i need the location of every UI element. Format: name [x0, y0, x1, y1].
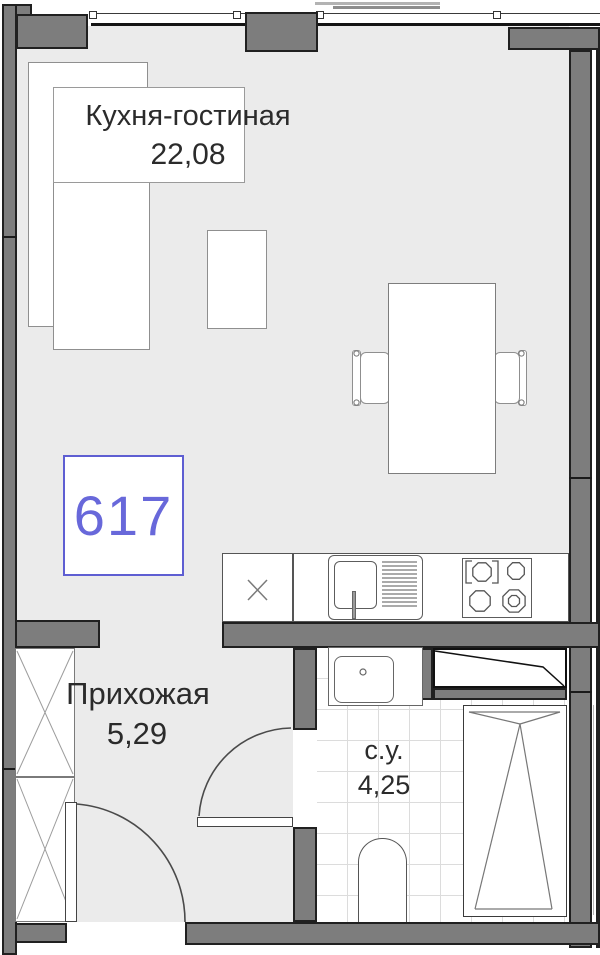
entrance-door-swing [77, 804, 185, 922]
hallway-name: Прихожая [28, 678, 248, 711]
bathroom-area: 4,25 [339, 771, 429, 799]
hallway-area: 5,29 [28, 718, 246, 751]
unit-number: 617 [74, 483, 173, 548]
bathroom-name: с.у. [339, 736, 429, 764]
kitchen-living-area: 22,08 [38, 139, 338, 171]
kitchen-living-name: Кухня-гостиная [38, 101, 338, 131]
unit-number-box: 617 [63, 455, 184, 576]
floor-plan: Кухня-гостиная 22,08 617 Прихожая 5,29 с… [0, 0, 600, 955]
